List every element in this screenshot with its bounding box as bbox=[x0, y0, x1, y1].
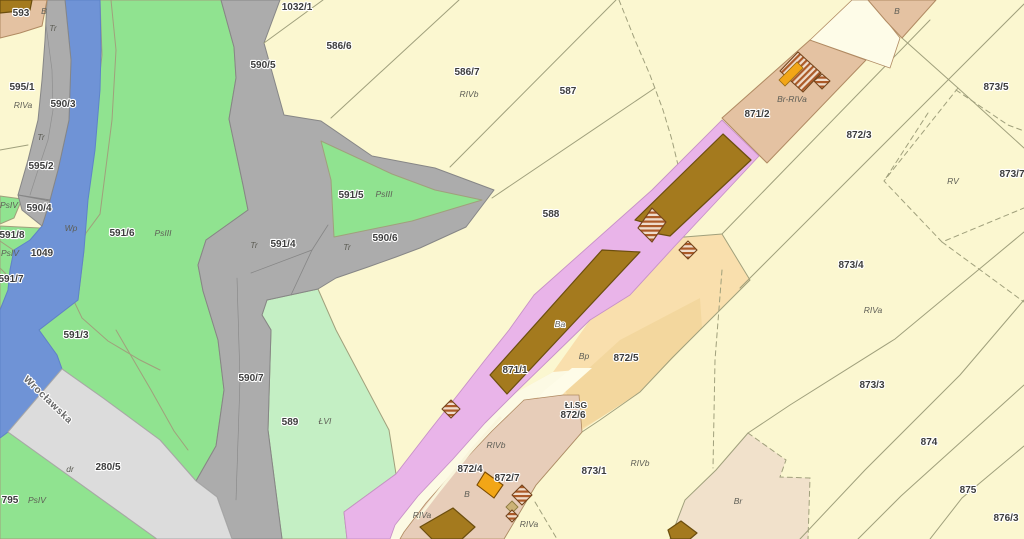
svg-text:872/7: 872/7 bbox=[494, 473, 519, 484]
svg-text:Tr: Tr bbox=[37, 132, 46, 142]
svg-text:Bp: Bp bbox=[579, 351, 590, 361]
svg-text:PsIV: PsIV bbox=[28, 495, 47, 505]
svg-text:587: 587 bbox=[560, 86, 577, 97]
svg-text:871/2: 871/2 bbox=[744, 109, 769, 120]
svg-text:872/6: 872/6 bbox=[560, 410, 585, 421]
svg-text:RIVa: RIVa bbox=[14, 100, 33, 110]
svg-text:Tr: Tr bbox=[49, 23, 58, 33]
svg-text:591/4: 591/4 bbox=[270, 239, 295, 250]
svg-text:873/3: 873/3 bbox=[859, 380, 884, 391]
svg-text:RIVa: RIVa bbox=[864, 305, 883, 315]
svg-text:PsIV: PsIV bbox=[1, 248, 20, 258]
svg-text:PsIV: PsIV bbox=[0, 200, 19, 210]
svg-text:Ba: Ba bbox=[555, 319, 566, 329]
svg-text:RIVa: RIVa bbox=[413, 510, 432, 520]
svg-text:590/4: 590/4 bbox=[26, 203, 51, 214]
svg-text:588: 588 bbox=[543, 209, 560, 220]
svg-text:591/6: 591/6 bbox=[109, 228, 134, 239]
svg-text:586/6: 586/6 bbox=[326, 41, 351, 52]
svg-text:795: 795 bbox=[2, 495, 19, 506]
svg-text:590/5: 590/5 bbox=[250, 60, 275, 71]
svg-text:591/3: 591/3 bbox=[63, 330, 88, 341]
svg-text:280/5: 280/5 bbox=[95, 462, 120, 473]
svg-text:Tr: Tr bbox=[343, 242, 352, 252]
svg-text:875: 875 bbox=[960, 485, 977, 496]
svg-text:PsIII: PsIII bbox=[154, 228, 172, 238]
svg-text:1032/1: 1032/1 bbox=[282, 2, 313, 13]
svg-text:595/2: 595/2 bbox=[28, 161, 53, 172]
svg-text:1049: 1049 bbox=[31, 248, 54, 259]
svg-text:589: 589 bbox=[282, 417, 299, 428]
svg-text:873/4: 873/4 bbox=[838, 260, 863, 271]
svg-text:Tr: Tr bbox=[250, 240, 259, 250]
svg-text:593: 593 bbox=[13, 8, 30, 19]
svg-text:590/3: 590/3 bbox=[50, 99, 75, 110]
svg-text:B: B bbox=[464, 489, 470, 499]
svg-text:dr: dr bbox=[66, 464, 75, 474]
svg-text:RIVb: RIVb bbox=[460, 89, 479, 99]
svg-text:591/5: 591/5 bbox=[338, 190, 363, 201]
svg-text:876/3: 876/3 bbox=[993, 513, 1018, 524]
svg-text:ŁI.SG: ŁI.SG bbox=[565, 400, 588, 410]
svg-text:590/6: 590/6 bbox=[372, 233, 397, 244]
svg-text:B: B bbox=[41, 6, 47, 16]
svg-text:871/1: 871/1 bbox=[502, 365, 527, 376]
svg-text:591/7: 591/7 bbox=[0, 274, 24, 285]
svg-text:RIVa: RIVa bbox=[520, 519, 539, 529]
svg-text:RIVb: RIVb bbox=[631, 458, 650, 468]
svg-text:591/8: 591/8 bbox=[0, 230, 25, 241]
svg-text:595/1: 595/1 bbox=[9, 82, 34, 93]
svg-text:872/5: 872/5 bbox=[613, 353, 638, 364]
svg-text:Br-RIVa: Br-RIVa bbox=[777, 94, 807, 104]
svg-text:872/4: 872/4 bbox=[457, 464, 482, 475]
svg-text:RIVb: RIVb bbox=[487, 440, 506, 450]
svg-text:Wp: Wp bbox=[65, 223, 78, 233]
svg-text:874: 874 bbox=[921, 437, 938, 448]
svg-text:RV: RV bbox=[947, 176, 960, 186]
svg-text:873/5: 873/5 bbox=[983, 82, 1008, 93]
svg-text:590/7: 590/7 bbox=[238, 373, 263, 384]
svg-text:586/7: 586/7 bbox=[454, 67, 479, 78]
svg-text:Br: Br bbox=[734, 496, 744, 506]
svg-text:873/7: 873/7 bbox=[999, 169, 1024, 180]
svg-text:ŁVI: ŁVI bbox=[319, 416, 332, 426]
svg-text:B: B bbox=[894, 6, 900, 16]
svg-text:PsIII: PsIII bbox=[375, 189, 393, 199]
svg-text:872/3: 872/3 bbox=[846, 130, 871, 141]
svg-text:873/1: 873/1 bbox=[581, 466, 606, 477]
